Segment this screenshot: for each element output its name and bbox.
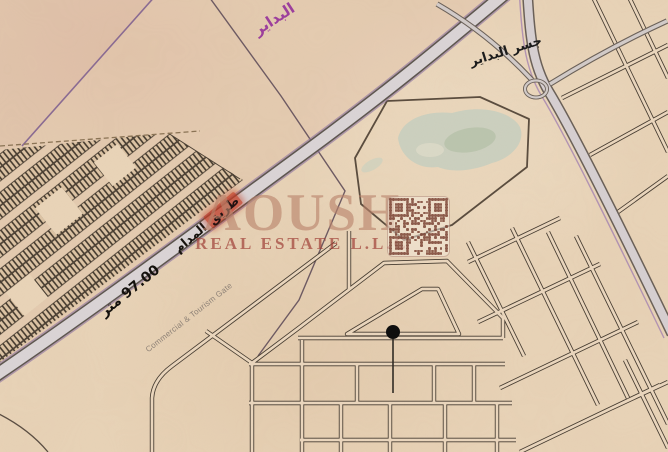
film-grain (0, 0, 668, 452)
map-canvas (0, 0, 668, 452)
map-stage: البداير جسر البداير طريق المدام 97.00 مت… (0, 0, 668, 452)
